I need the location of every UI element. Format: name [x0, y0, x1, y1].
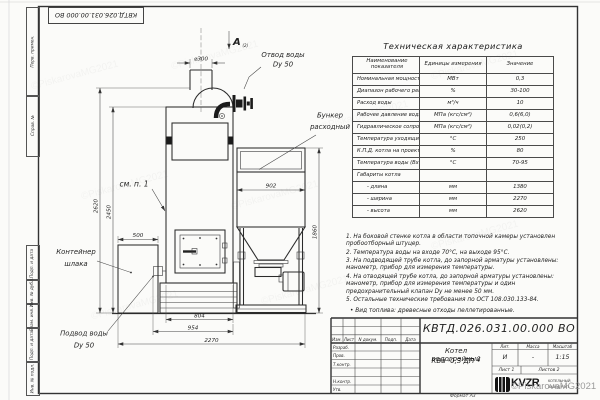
table-row: - длинамм1380 [353, 182, 554, 194]
format-label: Формат А3 [450, 394, 476, 399]
note-4: 4. На отводящей трубе котла, до запорной… [346, 274, 579, 296]
boiler-body [154, 107, 240, 313]
spec-table: Наименование показателя Единицы измерени… [352, 56, 554, 218]
dim-500: 500 [133, 233, 144, 239]
view-a-ref: (2) [243, 43, 249, 48]
table-row: - высотамм2620 [353, 206, 554, 218]
sheets-total: Листов 2 [521, 368, 577, 373]
col-list: Лист [343, 337, 355, 342]
note-2: 2. Температура воды на входе 70°С, на вы… [346, 250, 579, 257]
label-water-outlet: Отвод воды [261, 51, 305, 59]
table-row: Температура воды (Вход/выход)°С70-95 [353, 158, 554, 170]
table-row: Номинальная мощностьМВт0,3 [353, 74, 554, 86]
dim-2270: 2270 [204, 338, 219, 344]
table-row: Гидравлическое сопротивление котлаМПа (к… [353, 122, 554, 134]
slag-container [118, 245, 158, 313]
mass-value: - [518, 354, 548, 361]
dim-804: 804 [194, 314, 205, 320]
lit-label: Лит. [492, 344, 518, 349]
frame-col-podp-data-2: Подп. и дата [26, 327, 40, 363]
dim-2450: 2450 [107, 204, 113, 219]
doc-number-main: КВТД.026.031.00.000 ВО [420, 322, 578, 335]
dim-d300: ⌀300 [194, 57, 208, 63]
spec-header-row: Наименование показателя Единицы измерени… [353, 57, 554, 74]
label-water-inlet: Подвод воды [60, 330, 108, 338]
label-bunker: Бункер [317, 112, 344, 120]
frame-col-inv-podl: Инв. № подл. [26, 361, 40, 396]
frame-col-podp-data-1: Подп. и дата [26, 245, 40, 281]
label-slag-container: Контейнер [56, 248, 96, 256]
spec-table-title: Техническая характеристика [352, 41, 554, 51]
sheet-number: Лист 1 [492, 368, 521, 373]
lit-value: И [492, 354, 518, 361]
mass-label: Масса [518, 344, 548, 349]
doc-number-rotated: КВТД.026.031.00.000 ВО [55, 11, 137, 19]
role-razrab: Разраб. [333, 345, 349, 350]
col-n-dokum: N докум. [355, 337, 381, 342]
drawing-sheet: { "sheet": { "doc_number": "КВТД.026.031… [0, 0, 600, 400]
table-row: К.П.Д. котла на проектном топливе%80 [353, 146, 554, 158]
table-row: Габариты котла [353, 170, 554, 182]
role-tkontr: Т.контр. [333, 362, 351, 367]
role-prov: Пров. [333, 353, 345, 358]
dim-1860: 1860 [313, 224, 319, 239]
col-data: Дата [401, 337, 420, 342]
label-water-inlet-dn: Dу 50 [74, 342, 95, 350]
note-1: 1. На боковой стенке котла в области топ… [346, 234, 579, 249]
label-slag-container-2: шлака [64, 260, 87, 268]
dim-2620: 2620 [94, 198, 100, 213]
col-podp: Подп. [381, 337, 401, 342]
watermark-signature: ©PiskarovaMG2021 [511, 381, 596, 392]
label-water-outlet-dn: Dу 50 [273, 61, 294, 69]
label-see-note: см. п. 1 [120, 180, 149, 189]
note-3: 3. На подводящей трубе котла, до запорно… [346, 258, 579, 273]
scale-label: Масштаб [548, 344, 577, 349]
note-5: 5. Остальные технические требования по О… [346, 297, 579, 304]
kvzr-logo-icon [495, 377, 510, 392]
role-nkontr: Н.контр. [333, 379, 351, 384]
product-type: КВа -0,3 ДП • [420, 357, 492, 365]
frame-col-vzam-inv: Взам. инв. № [26, 303, 40, 329]
fuel-note: • Вид топлива: древесные отходы пеллетир… [350, 308, 515, 314]
table-row: Температура уходящих газов, не более°С25… [353, 134, 554, 146]
frame-col-sprav: Справ. № [26, 95, 40, 157]
scale-value: 1:15 [548, 354, 577, 361]
dimensions: ⌀300 2620 2450 1860 500 902 804 954 2270 [94, 57, 324, 349]
label-bunker-2: расходный [309, 123, 350, 131]
table-row: Рабочее давление водыМПа (кгс/см²)0,6(6,… [353, 110, 554, 122]
frame-col-perv-primen: Перв. примен. [26, 7, 40, 97]
water-outlet-elbow [216, 104, 230, 118]
fuel-bunker [236, 148, 306, 313]
dim-954: 954 [188, 326, 199, 332]
view-a-marker: А (2) [229, 31, 249, 49]
role-utv: Утв. [333, 387, 342, 392]
chimney-and-outlet [190, 28, 253, 118]
table-row: Диапазон рабочего регулирования%30-100 [353, 86, 554, 98]
doc-number-top-box: КВТД.026.031.00.000 ВО [48, 7, 144, 24]
dim-902: 902 [266, 184, 277, 190]
table-row: - ширинамм2270 [353, 194, 554, 206]
col-izm: Изм. [331, 337, 343, 342]
technical-notes: 1. На боковой стенке котла в области топ… [346, 234, 579, 305]
table-row: Расход водым³/ч10 [353, 98, 554, 110]
view-a-label: А [232, 37, 241, 48]
feeder-motor [283, 272, 304, 291]
